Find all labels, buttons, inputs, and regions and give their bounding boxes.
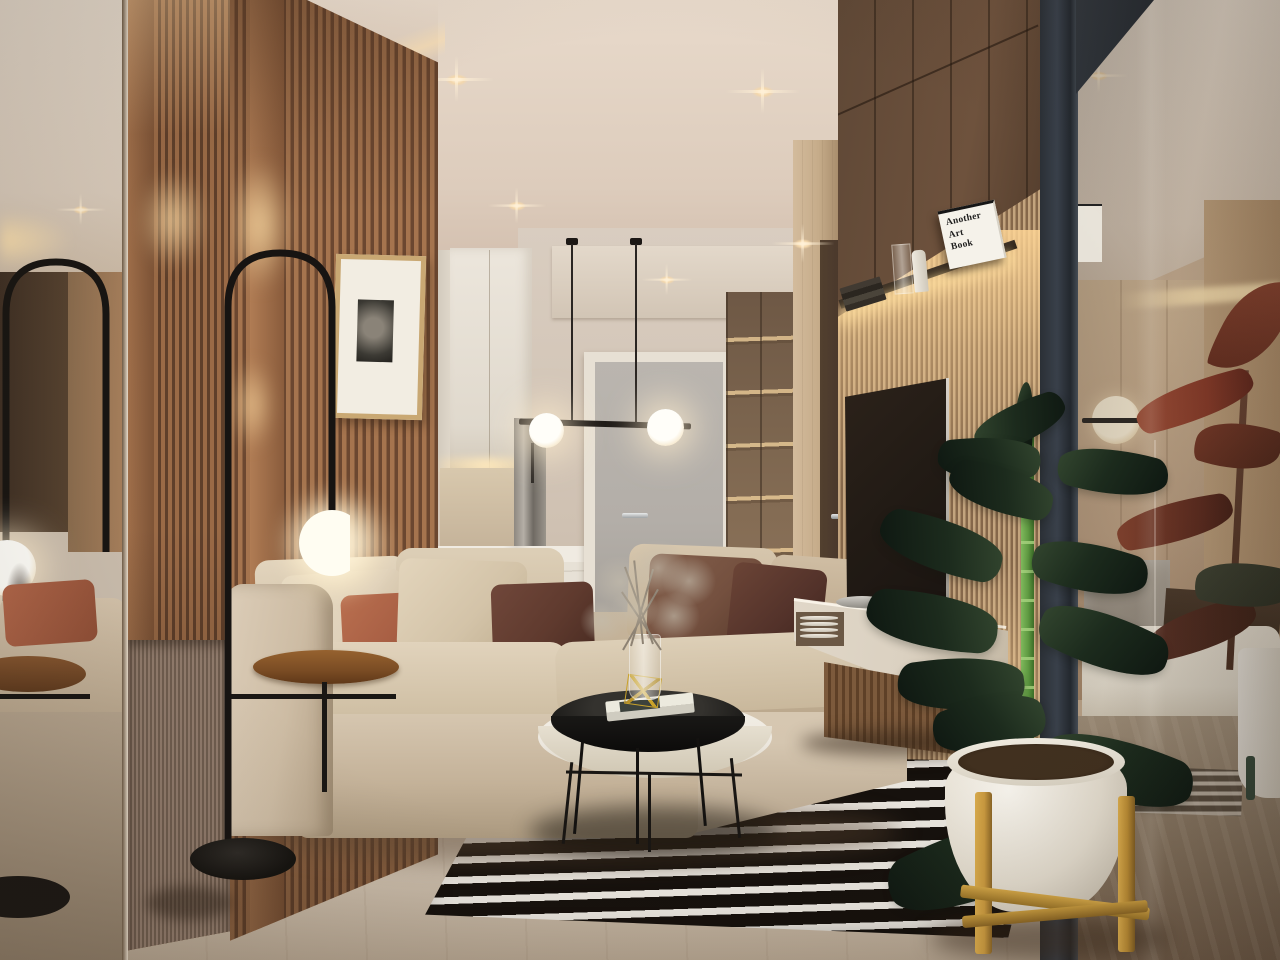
pendant-globe xyxy=(529,413,564,448)
stacked-plate xyxy=(800,616,838,620)
slat-partition xyxy=(128,0,230,960)
art-book: Another Art Book xyxy=(938,200,1007,270)
mirror-table-bar-reflection xyxy=(0,694,90,699)
mirror-pillow-reflection xyxy=(2,579,98,647)
floor-shadow-spot xyxy=(146,886,232,920)
framed-photo xyxy=(356,299,394,362)
glass-vase xyxy=(891,243,913,294)
pendant-globe xyxy=(647,409,684,446)
ceiling-spotlight xyxy=(790,237,816,251)
stacked-plate xyxy=(800,622,838,626)
pendant-cord xyxy=(635,244,637,422)
arc-floor-lamp xyxy=(220,245,350,885)
lamp-base xyxy=(190,838,296,880)
kitchen-faucet xyxy=(531,443,534,483)
planter-soil xyxy=(958,744,1114,780)
kitchen-cabinet-seam xyxy=(489,250,490,468)
reflected-book xyxy=(1076,204,1102,262)
ceiling-spotlight xyxy=(657,274,678,285)
door-handle xyxy=(622,513,648,518)
plant-stand-leg xyxy=(975,792,992,954)
ceiling-spotlight xyxy=(442,72,472,88)
console-plate-slot xyxy=(796,612,844,646)
mirror-spotlight-reflection xyxy=(71,204,92,215)
mirror-edge xyxy=(122,0,128,960)
bouquet-puff xyxy=(648,592,700,640)
stacked-plate xyxy=(800,628,838,632)
pendant-cord xyxy=(571,244,573,424)
ceiling-spotlight xyxy=(748,84,778,100)
bouquet-puff xyxy=(580,600,624,642)
mirror-floor-reflection xyxy=(0,712,128,960)
table-leg xyxy=(648,772,651,852)
mirror xyxy=(0,0,128,960)
partition-glow-spot xyxy=(138,170,208,270)
tray-table-leg xyxy=(636,748,639,844)
stacked-plate xyxy=(800,634,838,638)
plant-stand-leg xyxy=(1118,796,1135,952)
living-room-scene: Another Art Book xyxy=(0,0,1280,960)
ceiling-spotlight xyxy=(505,200,529,213)
